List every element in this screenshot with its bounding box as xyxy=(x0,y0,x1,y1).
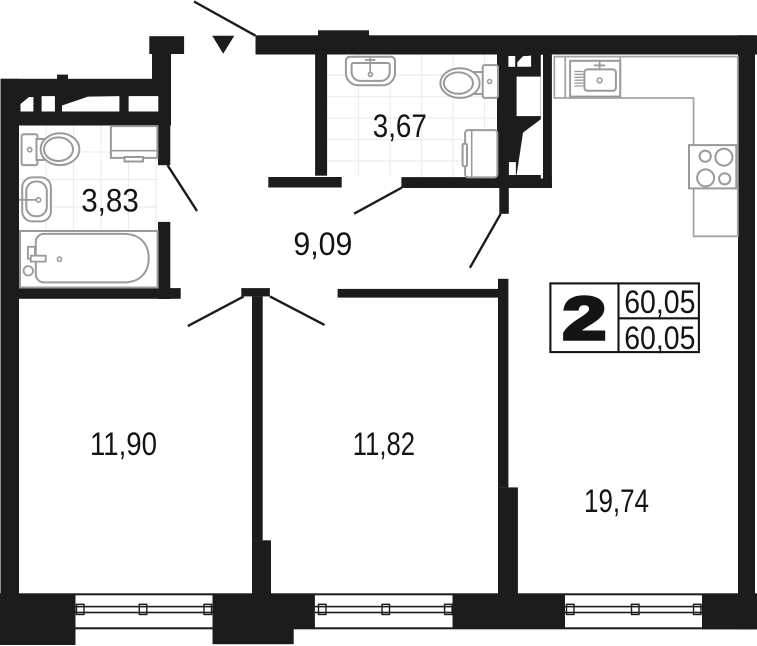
svg-text:3,83: 3,83 xyxy=(81,183,139,219)
svg-text:60,05: 60,05 xyxy=(624,320,695,356)
svg-text:2: 2 xyxy=(563,285,607,352)
svg-text:11,82: 11,82 xyxy=(353,426,415,462)
svg-text:60,05: 60,05 xyxy=(624,284,695,320)
svg-text:3,67: 3,67 xyxy=(373,108,427,144)
svg-text:19,74: 19,74 xyxy=(584,483,649,519)
svg-text:9,09: 9,09 xyxy=(293,226,352,262)
svg-text:11,90: 11,90 xyxy=(90,426,157,462)
